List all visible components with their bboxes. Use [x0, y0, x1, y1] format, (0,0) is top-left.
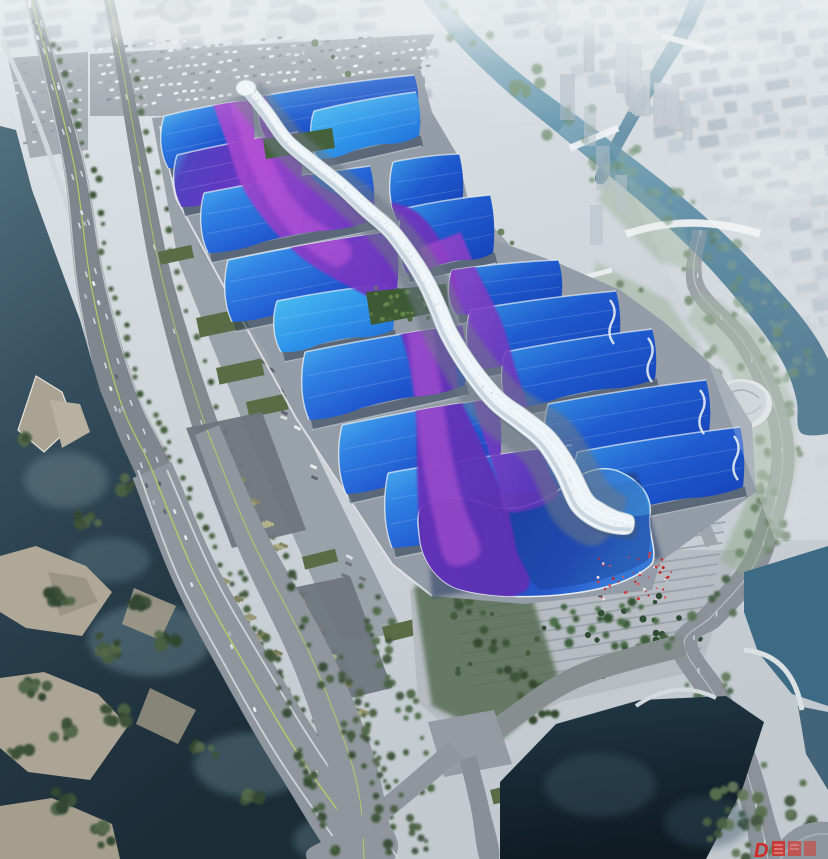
svg-text:D: D — [754, 840, 768, 859]
